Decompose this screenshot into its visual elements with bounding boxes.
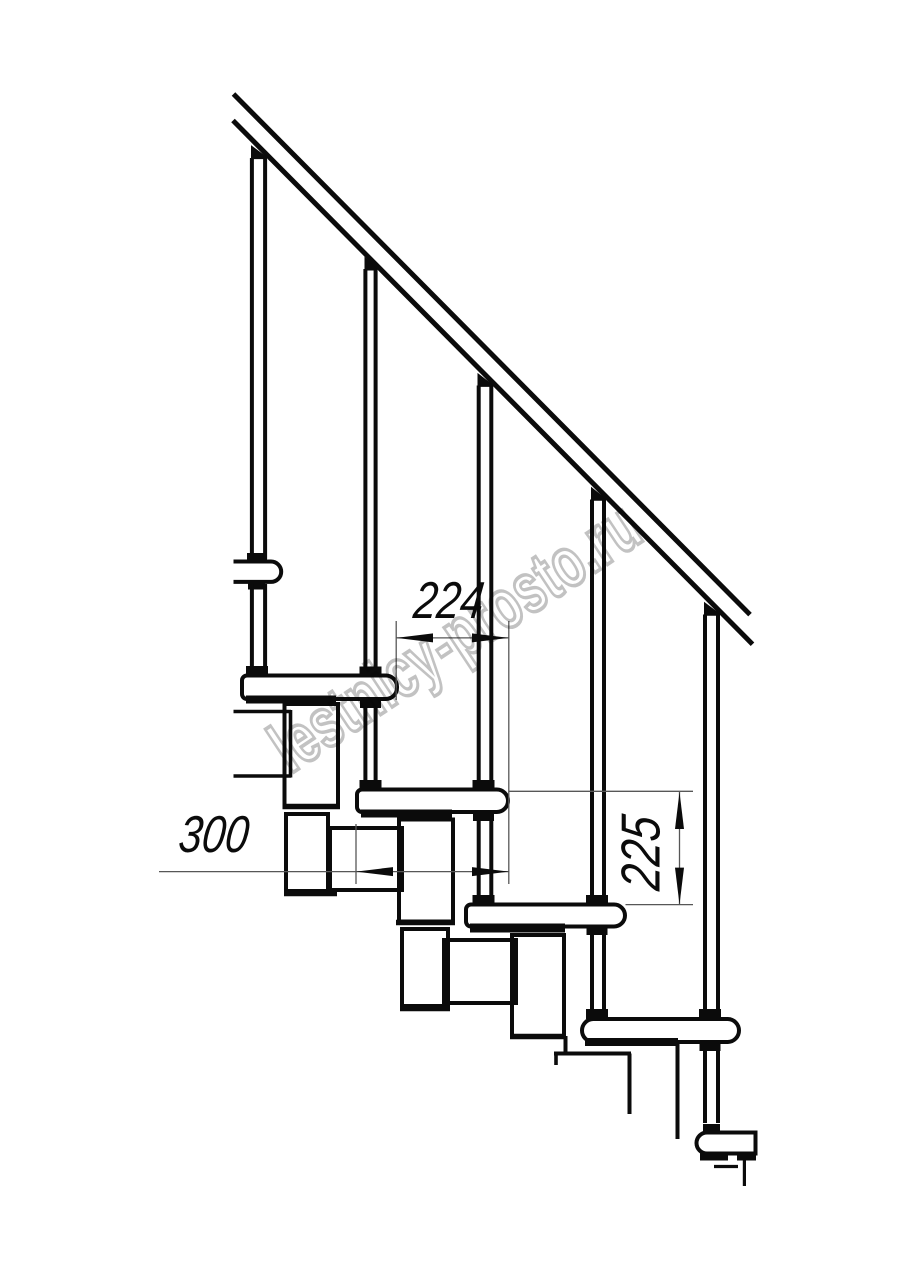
svg-text:225: 225 <box>610 812 672 894</box>
svg-text:300: 300 <box>176 806 253 864</box>
